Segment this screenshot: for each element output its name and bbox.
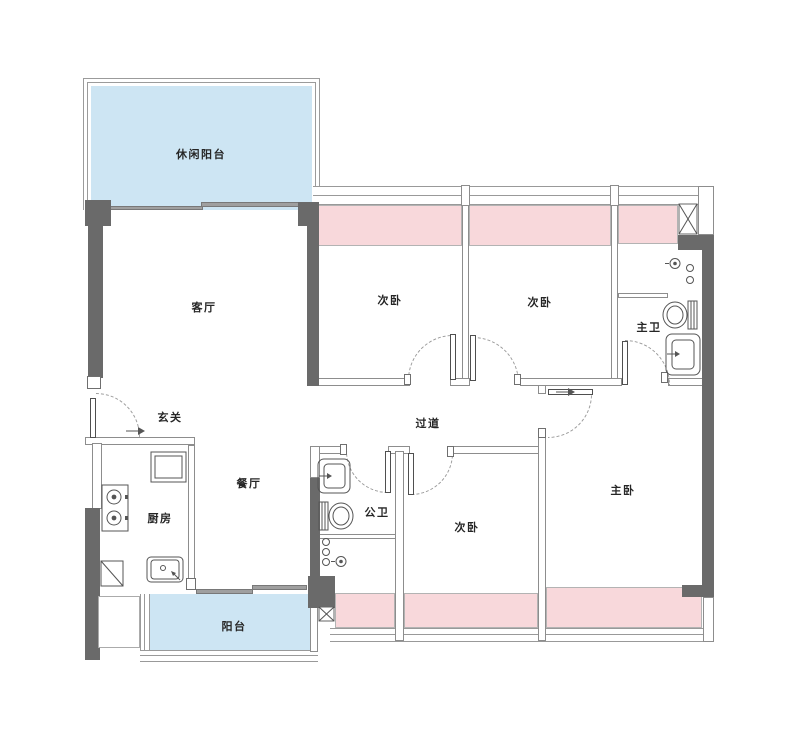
door-jamb [447, 446, 454, 457]
door-swing-arc [411, 453, 453, 495]
wall-segment [611, 205, 618, 386]
door-leaf [408, 453, 414, 495]
sliding-door-panel [252, 585, 307, 590]
toilet-icon [660, 298, 698, 332]
wall-structural [702, 235, 714, 587]
door-swing-arc [408, 335, 453, 380]
equipment-platform [98, 596, 140, 648]
sink-icon [317, 458, 351, 494]
room-label-bedroom-top-right: 次卧 [528, 294, 553, 310]
bay-window [546, 587, 702, 628]
entrance-door-frame [87, 376, 101, 389]
door-jamb [538, 428, 546, 438]
room-label-public-bath: 公卫 [365, 504, 390, 520]
toilet-icon [318, 499, 356, 533]
bay-window [469, 205, 611, 246]
wall-end-cap [186, 578, 196, 590]
sliding-door-panel [108, 206, 203, 210]
shaft-x-icon [678, 203, 698, 235]
door-leaf [622, 341, 628, 385]
sliding-door-panel [196, 589, 253, 594]
room-label-bedroom-bottom: 次卧 [455, 519, 480, 535]
wall-segment [451, 446, 546, 454]
window-band-divider [461, 185, 470, 206]
wall-segment [538, 385, 546, 394]
door-swing-arc [548, 394, 592, 438]
wall-structural [308, 576, 335, 608]
bay-window [618, 205, 678, 244]
door-direction-arrow [556, 386, 576, 398]
balcony-railing-bottom [140, 650, 318, 662]
boundary-top-right [698, 186, 714, 235]
room-label-leisure-balcony: 休闲阳台 [176, 146, 226, 162]
bay-window [335, 593, 395, 628]
boundary-bottom-right [703, 597, 714, 642]
shower-icon [665, 255, 682, 272]
wall-segment [188, 445, 195, 589]
wall-segment [520, 378, 622, 386]
bay-window [404, 593, 538, 628]
window-band-bottom [330, 628, 713, 642]
door-leaf [470, 335, 476, 381]
room-label-hallway: 过道 [416, 415, 441, 431]
stove-icon [101, 484, 129, 532]
room-label-balcony: 阳台 [222, 618, 247, 634]
duct-shaft-icon [100, 560, 124, 587]
kitchen-sink-icon [146, 556, 184, 583]
floor-plan: 休闲阳台 客厅 玄关 餐厅 厨房 阳台 次卧 次卧 主卫 过道 公卫 次卧 主卧 [0, 0, 800, 743]
wall-segment [538, 437, 546, 641]
door-swing-arc [346, 451, 388, 493]
door-jamb [340, 444, 347, 455]
door-leaf [450, 334, 456, 380]
window-band-top [313, 186, 698, 205]
entrance-door-leaf [90, 398, 96, 438]
room-label-kitchen: 厨房 [148, 510, 173, 526]
room-label-foyer: 玄关 [158, 409, 183, 425]
wall-segment [462, 205, 469, 386]
sliding-door-panel [201, 202, 301, 207]
room-label-dining-room: 餐厅 [237, 475, 262, 491]
door-direction-arrow [126, 425, 146, 437]
bay-window [318, 205, 462, 246]
room-label-bedroom-top-left: 次卧 [378, 292, 403, 308]
wall-structural [307, 202, 319, 386]
kitchen-cabinet-icon [150, 451, 187, 483]
door-jamb [514, 374, 521, 385]
wall-segment [668, 378, 703, 386]
wall-segment [318, 378, 410, 386]
sink-icon [665, 333, 701, 376]
plumbing-points-icon [684, 262, 696, 288]
shaft-x-icon [318, 606, 335, 622]
door-leaf [385, 451, 391, 493]
room-label-master-bath: 主卫 [637, 319, 662, 335]
door-jamb [404, 374, 411, 385]
shower-icon [331, 553, 348, 570]
room-label-living-room: 客厅 [192, 299, 217, 315]
door-swing-arc [473, 337, 519, 383]
wall-segment [395, 451, 404, 641]
room-label-master-bedroom: 主卧 [611, 482, 636, 498]
window-band-divider [610, 185, 619, 206]
wall-structural [682, 585, 714, 597]
wall-structural [88, 200, 103, 378]
